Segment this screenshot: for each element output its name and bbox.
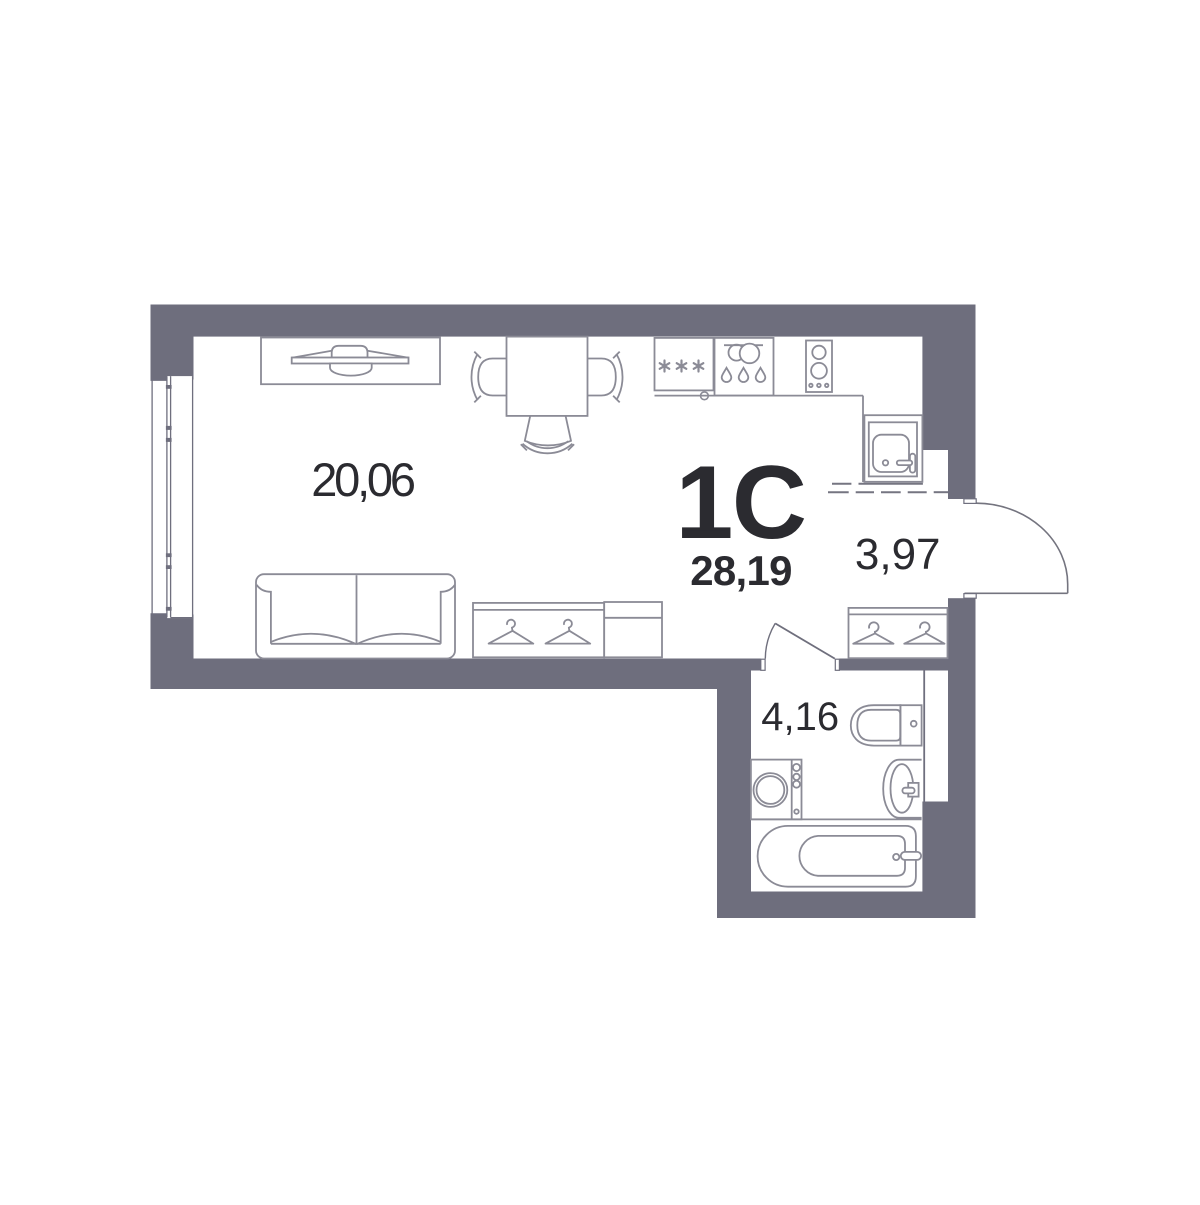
svg-text:4,16: 4,16: [761, 695, 839, 739]
svg-text:1C: 1C: [676, 445, 806, 561]
svg-text:20,06: 20,06: [311, 453, 415, 506]
svg-text:3,97: 3,97: [855, 530, 941, 579]
svg-text:28,19: 28,19: [690, 547, 792, 594]
